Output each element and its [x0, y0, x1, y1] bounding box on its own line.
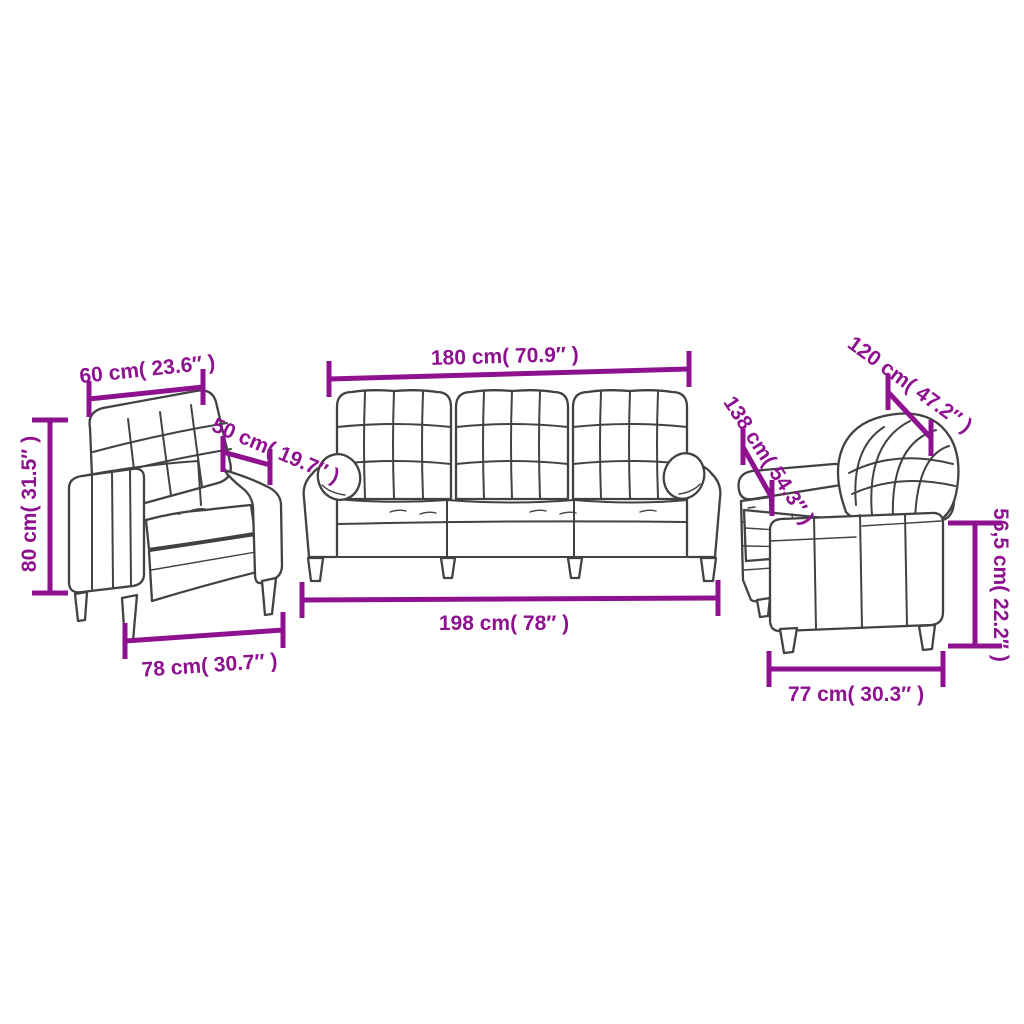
dim-line: [302, 598, 718, 600]
sofa3-legs: [308, 558, 716, 581]
dim-label-sofa2-arm-height: 56,5 cm( 22.2″ ): [989, 508, 1012, 662]
armchair-left-armrest: [69, 469, 144, 593]
dim-line: [329, 369, 689, 379]
dim-armchair-base-width: 78 cm( 30.7″ ): [125, 612, 283, 682]
sofa3-seat: [309, 499, 715, 557]
dim-sofa3-back-width: 180 cm( 70.9″ ): [329, 343, 689, 397]
dim-line: [125, 630, 283, 641]
dim-sofa2-base-depth: 77 cm( 30.3″ ): [769, 651, 943, 706]
dim-label-sofa2-base-depth: 77 cm( 30.3″ ): [788, 683, 924, 706]
dim-sofa3-base-width: 198 cm( 78″ ): [302, 580, 718, 635]
dim-label-armchair-base-width: 78 cm( 30.7″ ): [141, 649, 278, 681]
dim-label-sofa3-base-width: 198 cm( 78″ ): [439, 612, 569, 635]
dim-label-armchair-back-width: 60 cm( 23.6″ ): [78, 351, 216, 388]
dim-label-sofa3-back-width: 180 cm( 70.9″ ): [431, 343, 579, 370]
dimension-diagram: 60 cm( 23.6″ ) 50 cm( 19.7″ ) 80 cm( 31.…: [0, 0, 1024, 1024]
three-seater-sofa-drawing: [304, 390, 721, 581]
dim-armchair-height: 80 cm( 31.5″ ): [18, 420, 68, 593]
dim-label-armchair-height: 80 cm( 31.5″ ): [18, 436, 41, 572]
diagram-canvas: 60 cm( 23.6″ ) 50 cm( 19.7″ ) 80 cm( 31.…: [0, 0, 1024, 1024]
sofa2-side-panel: [770, 513, 943, 631]
dim-sofa2-arm-height: 56,5 cm( 22.2″ ): [948, 508, 1012, 662]
